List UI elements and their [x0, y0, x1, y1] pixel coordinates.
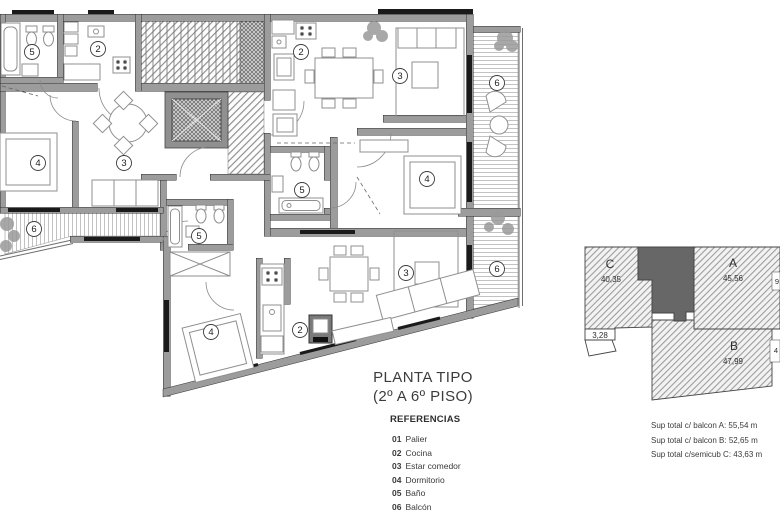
vanity [272, 176, 283, 192]
bidet [309, 152, 319, 171]
legend-item: 06Balcón [392, 501, 461, 515]
legend-item-number: 01 [392, 434, 401, 444]
sofa [398, 28, 456, 48]
legend-heading: REFERENCIAS [390, 414, 460, 425]
svg-text:5: 5 [196, 231, 201, 242]
room-number-label: 3 [117, 156, 132, 171]
room-number-label: 5 [192, 229, 207, 244]
svg-text:6: 6 [494, 78, 499, 89]
key-tail [585, 340, 616, 356]
legend-item: 05Baño [392, 487, 461, 501]
duct-shaft [240, 20, 264, 88]
svg-text:3: 3 [121, 158, 126, 169]
room-number-label: 2 [91, 42, 106, 57]
bed [0, 133, 57, 191]
dining-table-round [93, 91, 157, 154]
key-unit-area: 40,35 [601, 275, 622, 284]
bidet [214, 205, 224, 223]
bidet [43, 26, 54, 46]
toilet [196, 205, 206, 223]
key-unit-area: 45,56 [723, 274, 744, 283]
sofa [92, 180, 158, 206]
svg-text:6: 6 [494, 264, 499, 275]
room-number-label: 4 [31, 156, 46, 171]
key-unit-letter: B [730, 339, 738, 353]
svg-text:5: 5 [29, 47, 34, 58]
svg-text:2: 2 [298, 47, 303, 58]
dining-table [305, 48, 383, 108]
coffee-table [412, 62, 438, 88]
palier-hatch [228, 92, 264, 174]
bathtub [1, 23, 20, 75]
legend-item-number: 04 [392, 475, 401, 485]
plan-title-line2: (2º A 6º PISO) [350, 387, 496, 406]
room-number-label: 4 [204, 325, 219, 340]
legend-item-label: Cocina [405, 448, 431, 458]
room-number-label: 2 [293, 323, 308, 338]
legend-item-label: Balcón [405, 502, 431, 512]
room-number-label: 5 [295, 183, 310, 198]
svg-text:2: 2 [297, 325, 302, 336]
legend-item-number: 05 [392, 488, 401, 498]
toilet [26, 26, 37, 46]
room-number-label: 6 [490, 76, 505, 91]
floorplan-page: { "plan": { "title_line1": "PLANTA TIPO"… [0, 0, 780, 520]
stove [296, 23, 316, 39]
svg-text:2: 2 [95, 44, 100, 55]
svg-text:3: 3 [397, 71, 402, 82]
stair-core [141, 20, 264, 174]
svg-text:5: 5 [299, 185, 304, 196]
sink [272, 36, 286, 48]
cupboard [309, 315, 332, 343]
room-number-label: 3 [399, 266, 414, 281]
room-number-label: 6 [490, 262, 505, 277]
plant-icon [363, 21, 388, 42]
area-summary: Sup total c/ balcon A: 55,54 mSup total … [651, 419, 780, 463]
legend: 01Palier02Cocina03Estar comedor04Dormito… [392, 433, 461, 515]
svg-text:4: 4 [208, 327, 213, 338]
legend-item-label: Baño [405, 488, 425, 498]
dining-table [319, 246, 379, 302]
legend-item-number: 02 [392, 448, 401, 458]
legend-item-label: Dormitorio [405, 475, 444, 485]
svg-text:4: 4 [424, 174, 429, 185]
plan-title: PLANTA TIPO (2º A 6º PISO) [350, 368, 496, 406]
closet [170, 252, 230, 276]
key-unit-letter: C [606, 257, 615, 271]
area-summary-line: Sup total c/ balcon A: 55,54 m [651, 419, 780, 434]
key-unit-letter: A [729, 256, 737, 270]
legend-item-label: Palier [405, 434, 427, 444]
bathtub [279, 198, 323, 213]
legend-item-label: Estar comedor [405, 461, 460, 471]
svg-text:4: 4 [35, 158, 40, 169]
room-number-label: 5 [25, 45, 40, 60]
bathtub [168, 206, 182, 247]
vanity [22, 64, 38, 76]
bed [404, 156, 461, 214]
fridge [274, 54, 294, 80]
legend-item-number: 06 [392, 502, 401, 512]
sink [263, 305, 281, 331]
plan-title-line1: PLANTA TIPO [350, 368, 496, 387]
svg-text:3: 3 [403, 268, 408, 279]
sink [88, 26, 104, 37]
key-plan: C40,35A45,56B47,993,2894 [585, 247, 780, 400]
legend-item: 01Palier [392, 433, 461, 447]
room-number-label: 3 [393, 69, 408, 84]
stove [113, 57, 130, 73]
closet [360, 140, 408, 152]
key-edge-label: 9 [775, 277, 779, 286]
area-summary-line: Sup total c/semicub C: 43,63 m [651, 448, 780, 463]
key-edge-label: 4 [774, 346, 778, 355]
legend-item: 02Cocina [392, 447, 461, 461]
area-summary-line: Sup total c/ balcon B: 52,65 m [651, 434, 780, 449]
closet [64, 64, 100, 80]
toilet [291, 152, 301, 171]
room-number-label: 6 [27, 222, 42, 237]
room-number-label: 2 [294, 45, 309, 60]
stove [262, 268, 282, 285]
key-extra-area: 3,28 [592, 331, 608, 340]
legend-item: 04Dormitorio [392, 474, 461, 488]
key-unit-area: 47,99 [723, 357, 744, 366]
legend-item-number: 03 [392, 461, 401, 471]
balcony-table [490, 116, 508, 134]
svg-text:6: 6 [31, 224, 36, 235]
room-number-label: 4 [420, 172, 435, 187]
legend-item: 03Estar comedor [392, 460, 461, 474]
